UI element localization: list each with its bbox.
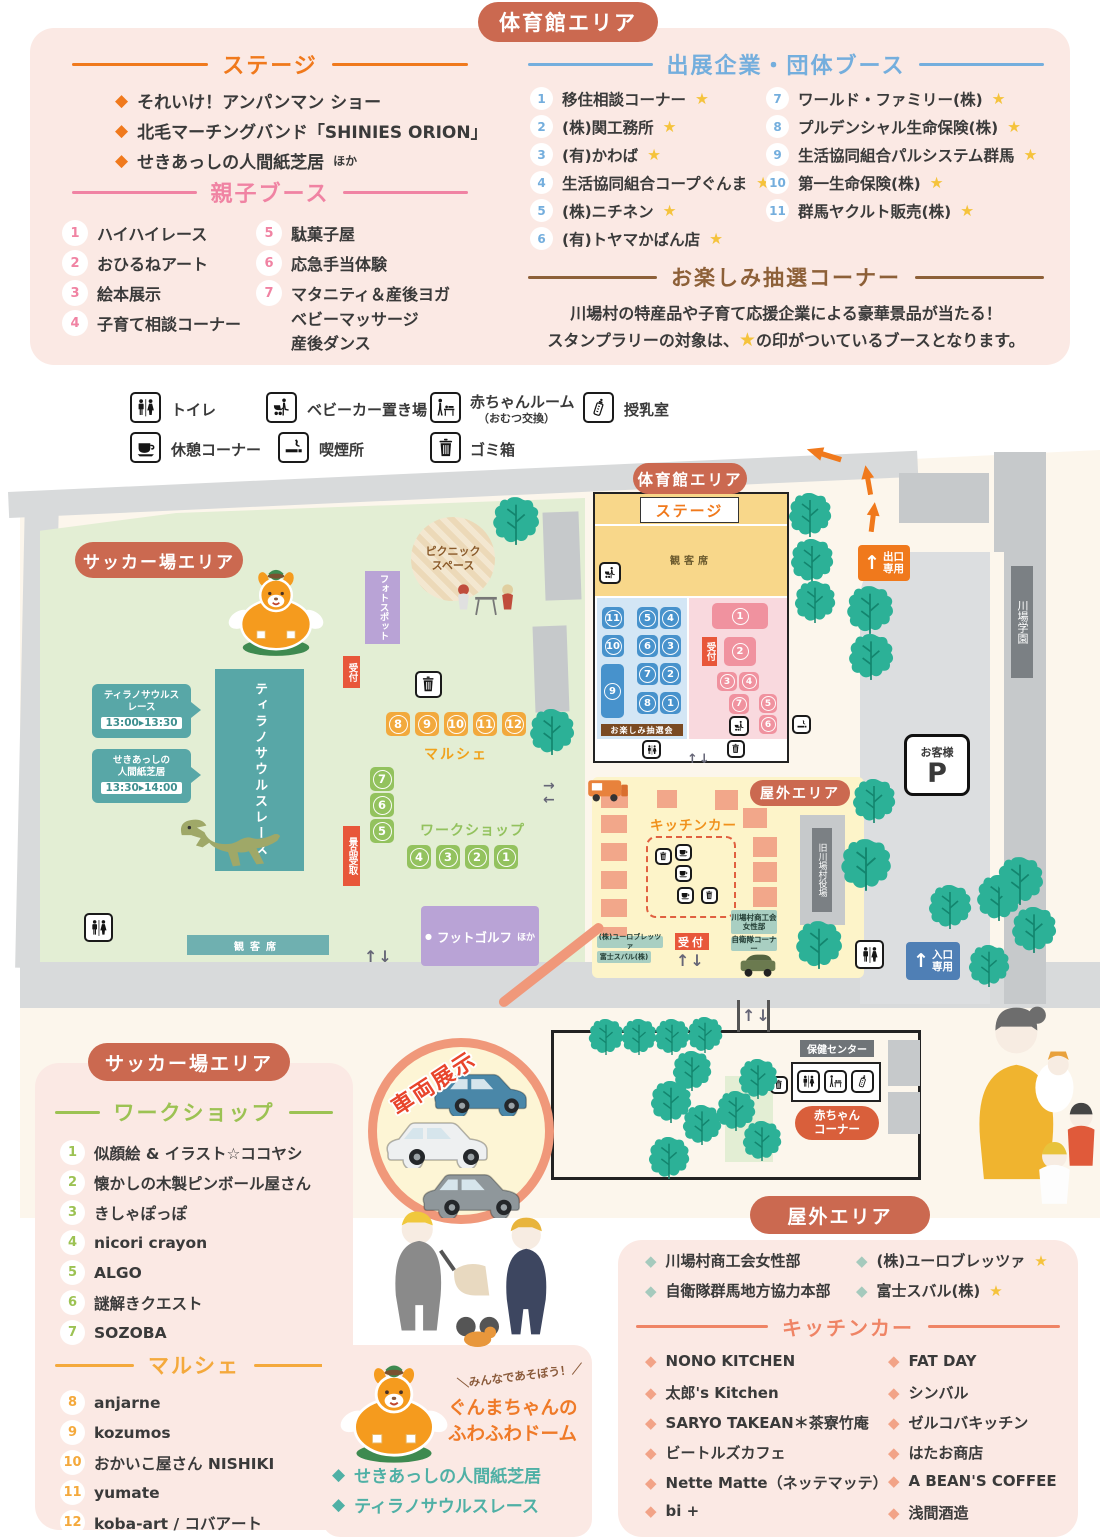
outdoor-booth-item: ◆(株)ユーロブレッツァ★ [856, 1250, 1048, 1271]
gym-area-badge-top: 体育館エリア [478, 2, 658, 42]
workshop-heading: ワークショップ [55, 1097, 333, 1127]
kitchen-car-item: ◆NONO KITCHEN [645, 1352, 795, 1370]
outdoor-booth-item: ◆自衛隊群馬地方協力本部 [645, 1280, 831, 1301]
diamond-icon: ◆ [332, 1465, 345, 1485]
kitchen-car-label: キッチンカー [650, 814, 740, 834]
kitchen-car-spot [715, 790, 738, 810]
stage-item: ◆それいけ！アンパンマン ショー [115, 88, 381, 113]
gym-booth: 7 [637, 663, 658, 685]
outdoor-booth-item: ◆川場村商工会女性部 [645, 1250, 801, 1271]
star-icon: ★ [1007, 118, 1021, 136]
parking-sign: お客様 P [904, 734, 970, 796]
kitchen-car-item: ◆FAT DAY [888, 1352, 976, 1370]
marche-booth: 9 [415, 712, 439, 736]
workshop-booth: 2 [465, 845, 489, 869]
tree-icon [790, 538, 834, 584]
exhibitor-item: 9生活協同組合パルシステム群馬★ [766, 143, 1037, 166]
marche-booth: 10 [444, 712, 468, 736]
entrance-only-sign: ↑ 入口専用 [906, 942, 960, 980]
gym-booth: 2 [660, 663, 681, 685]
diamond-icon: ◆ [888, 1384, 900, 1402]
toilet-icon [642, 740, 661, 759]
stage-item: ◆せきあっしの人間紙芝居ほか [115, 148, 357, 173]
tree-icon [687, 1016, 723, 1054]
tree-icon [968, 944, 1010, 988]
gym-booth: 1 [712, 603, 768, 629]
workshop-item: 5ALGO [60, 1260, 142, 1285]
legend-toilet-label: トイレ [171, 399, 216, 420]
gym-area-badge-map: 体育館エリア [633, 463, 747, 494]
stroller-icon [266, 392, 297, 423]
workshop-booth: 3 [436, 845, 460, 869]
diaper-change-icon [430, 392, 461, 423]
gym-booth: 9 [601, 664, 624, 718]
star-icon: ★ [1034, 1252, 1047, 1270]
exit-only-sign: ↑ 出口専用 [858, 545, 910, 581]
star-icon: ★ [992, 90, 1006, 108]
gym-seats-label: 観客席 [648, 552, 734, 567]
women-group-label: 川場村商工会女性部 [731, 910, 777, 934]
gym-booth: 4 [660, 607, 681, 629]
soccer-area-badge-map: サッカー場エリア [75, 542, 243, 578]
oyako-item: 7マタニティ＆産後ヨガ [256, 280, 450, 306]
star-icon: ★ [960, 202, 974, 220]
event-map-flyer: 体育館エリア ステージ ◆それいけ！アンパンマン ショー ◆北毛マーチングバンド… [0, 0, 1100, 1537]
tree-icon [1011, 906, 1057, 954]
kitchen-car-item: ◆太郎's Kitchen [645, 1382, 779, 1403]
exhibitor-item: 7ワールド・ファミリー(株)★ [766, 87, 1006, 110]
tree-icon [795, 920, 843, 970]
diamond-icon: ◆ [888, 1352, 900, 1370]
tree-icon [794, 580, 836, 624]
oyako-item-extra: 産後ダンス [291, 330, 371, 354]
gym-booth: 5 [637, 607, 658, 629]
diamond-icon: ◆ [888, 1472, 900, 1490]
gunma-dome-illustration [333, 1356, 455, 1468]
callout-pointer [191, 767, 201, 783]
oyako-item: 6応急手当体験 [256, 250, 387, 276]
tree-icon [788, 492, 832, 538]
arrows-up-down: ↑↓ [676, 951, 704, 970]
oyako-heading: 親子ブース [72, 176, 468, 208]
tree-icon [529, 708, 575, 756]
lottery-text-line2: スタンプラリーの対象は、★の印がついているブースとなります。 [528, 327, 1044, 351]
star-icon: ★ [709, 230, 723, 248]
stage-item: ◆北毛マーチングバンド「SHINIES ORION」 [115, 118, 488, 143]
toilet-icon [855, 940, 884, 969]
diamond-icon: ◆ [888, 1444, 900, 1462]
gunma-event-item: ◆ティラノサウルスレース [332, 1492, 539, 1517]
kitchen-car-spot [753, 862, 777, 882]
lottery-text-line1: 川場村の特産品や子育て応援企業による豪華景品が当たる！ [528, 300, 1044, 324]
marche-item: 11yumate [60, 1480, 160, 1505]
trash-icon [655, 848, 672, 865]
path-line [737, 1000, 740, 1032]
diamond-icon: ◆ [645, 1444, 657, 1462]
diamond-icon: ◆ [856, 1282, 868, 1300]
lottery-heading: お楽しみ抽選コーナー [528, 262, 1044, 292]
gym-booth: 6 [637, 635, 658, 657]
gym-reception-label: 受付 [702, 637, 717, 666]
star-icon: ★ [663, 202, 677, 220]
gym-booth: 6 [759, 715, 777, 734]
gym-lottery-bar: お楽しみ抽選会 [601, 724, 683, 736]
diamond-icon: ◆ [645, 1282, 657, 1300]
tree-icon [621, 1018, 657, 1056]
tree-icon [996, 856, 1044, 906]
bottle-icon [851, 1070, 874, 1093]
outdoor-booth-item: ◆富士スバル(株)★ [856, 1280, 1003, 1301]
star-icon: ★ [1024, 146, 1038, 164]
legend-baby-room-label: 赤ちゃんルーム [470, 391, 575, 412]
stroller-icon [729, 716, 749, 736]
kitchen-car-spot [601, 871, 627, 889]
legend-nursing-label: 授乳室 [624, 399, 669, 420]
kitchen-car-spot [753, 887, 777, 907]
kitchen-car-spot [601, 899, 627, 917]
cup-icon [675, 865, 692, 882]
building [888, 1092, 920, 1134]
gunma-event-item: ◆せきあっしの人間紙芝居 [332, 1462, 541, 1487]
workshop-booth: 4 [407, 845, 431, 869]
kitchen-car-spot [657, 790, 677, 808]
workshop-item: 7SOZOBA [60, 1320, 167, 1345]
diamond-icon: ◆ [645, 1384, 657, 1402]
marche-booth: 11 [473, 712, 497, 736]
kitchen-car-item: ◆SARYO TAKEAN＊茶寮竹庵 [645, 1412, 869, 1433]
diamond-icon: ◆ [888, 1504, 900, 1522]
gym-booth: 4 [739, 672, 759, 691]
kitchen-car-item: ◆ゼルコバキッチン [888, 1412, 1028, 1433]
gym-booth: 7 [729, 694, 749, 714]
kitchen-car-item: ◆はたお商店 [888, 1442, 983, 1463]
star-icon: ★ [647, 146, 661, 164]
trash-icon [727, 740, 745, 758]
lottery-title: お楽しみ抽選コーナー [657, 262, 915, 292]
trex-race-callout: ティラノサウルス レース 13:00▸13:30 [92, 684, 191, 738]
legend-baby-room-sub: （おむつ交換） [478, 410, 555, 426]
health-center-sign: 保健センター [800, 1040, 874, 1057]
kitchen-car-spot [743, 808, 767, 828]
jsdf-vehicle [737, 952, 779, 978]
exhibitor-title: 出展企業・団体ブース [653, 48, 920, 80]
cup-icon [675, 844, 692, 861]
stage-heading: ステージ [72, 48, 468, 80]
exhibitor-item: 6(有)トヤマかばん店★ [530, 227, 723, 250]
trash-icon [430, 432, 461, 463]
workshop-map-label: ワークショップ [420, 820, 525, 840]
workshop-item: 4nicori crayon [60, 1230, 207, 1255]
diamond-icon: ◆ [115, 121, 128, 141]
exhibitor-item: 11群馬ヤクルト販売(株)★ [766, 199, 974, 222]
kitchen-car-item: ◆A BEAN'S COFFEE [888, 1472, 1057, 1490]
kamishibai-callout: せきあっしの 人間紙芝居 13:30▸14:00 [92, 749, 191, 803]
exhibit-car-white [382, 1116, 502, 1168]
workshop-item: 2懐かしの木製ピンボール屋さん [60, 1170, 311, 1195]
kitchen-car-item: ◆浅間酒造 [888, 1502, 969, 1523]
marche-item: 9kozumos [60, 1420, 171, 1445]
marche-item: 12koba-art / コバアート [60, 1510, 262, 1535]
diamond-icon: ◆ [645, 1252, 657, 1270]
exhibitor-item: 2(株)関工務所★ [530, 115, 677, 138]
star-icon: ★ [739, 329, 756, 351]
building [899, 473, 989, 523]
tree-icon [840, 838, 892, 892]
kitchen-car-heading: キッチンカー [636, 1312, 1060, 1341]
exhibitor-item: 10第一生命保険(株)★ [766, 171, 944, 194]
marche-item: 8anjarne [60, 1390, 160, 1415]
workshop-item: 3きしゃぽっぽ [60, 1200, 187, 1225]
prize-pickup-label: 景品受取 [343, 826, 360, 886]
diamond-icon: ◆ [115, 151, 128, 171]
soccer-seats-bar: 観客席 [187, 935, 329, 955]
oyako-item: 1ハイハイレース [62, 220, 207, 246]
gym-booth: 5 [759, 694, 777, 713]
old-village-office-sign: 旧川場村役場 [812, 828, 832, 912]
outdoor-area-badge-map: 屋外エリア [750, 780, 850, 806]
gunma-dome-map [222, 562, 330, 660]
trex-illustration [178, 810, 282, 882]
marche-heading: マルシェ [55, 1350, 333, 1380]
gym-booth: 8 [637, 692, 658, 714]
tree-icon [742, 1120, 782, 1162]
cup-icon [677, 887, 694, 904]
kitchen-car-item: ◆シンバル [888, 1382, 969, 1403]
trash-icon [415, 671, 442, 698]
star-icon: ★ [989, 1282, 1002, 1300]
kitchen-car-spot [601, 843, 627, 861]
diamond-icon: ◆ [115, 91, 128, 111]
soccer-area-badge-panel: サッカー場エリア [88, 1043, 290, 1081]
diamond-icon: ◆ [645, 1414, 657, 1432]
diamond-icon: ◆ [856, 1252, 868, 1270]
diamond-icon: ◆ [332, 1495, 345, 1515]
tree-icon [848, 633, 894, 681]
outdoor-reception-label: 受付 [675, 933, 709, 950]
soccer-reception-label: 受付 [343, 656, 360, 688]
kitchen-car-item: ◆Nette Matte（ネッテマッテ） [645, 1472, 888, 1493]
exhibitor-item: 4生活協同組合コープぐんま★ [530, 171, 770, 194]
legend-smoking-label: 喫煙所 [319, 439, 364, 460]
building [542, 511, 581, 600]
legend-rest-label: 休憩コーナー [171, 439, 261, 460]
exhibitor-heading: 出展企業・団体ブース [528, 48, 1044, 80]
tree-icon [852, 778, 896, 824]
tree-icon [648, 1136, 690, 1180]
euro-label: (株)ユーロブレッツァ [597, 936, 663, 948]
toilet-icon [130, 392, 161, 423]
tree-icon [588, 1018, 624, 1056]
workshop-item: 6謎解きクエスト [60, 1290, 203, 1315]
trash-icon [701, 887, 718, 904]
arrows-left-right: →← [543, 779, 555, 807]
diamond-icon: ◆ [645, 1474, 657, 1492]
oyako-item: 4子育て相談コーナー [62, 310, 241, 336]
exhibitor-item: 1移住相談コーナー★ [530, 87, 709, 110]
workshop-booth: 1 [494, 845, 518, 869]
marche-booth: 12 [502, 712, 526, 736]
workshop-item: 1似顔絵 & イラスト☆ココヤシ [60, 1140, 302, 1165]
legend-stroller-label: ベビーカー置き場 [307, 399, 427, 420]
stroller-family-illustration [360, 1202, 566, 1348]
cup-icon [130, 432, 161, 463]
star-icon: ★ [663, 118, 677, 136]
building [888, 1040, 920, 1086]
building [533, 625, 570, 712]
diaper-change-icon [824, 1070, 847, 1093]
baby-corner-badge: 赤ちゃんコーナー [795, 1106, 879, 1140]
smoking-icon [792, 715, 811, 734]
tree-icon [846, 585, 894, 635]
toilet-icon [797, 1070, 820, 1093]
arrows-up-down: ↑↓ [364, 947, 392, 966]
kitchen-car-spot [753, 837, 777, 857]
oyako-title: 親子ブース [197, 176, 344, 208]
smoking-icon [278, 432, 309, 463]
legend-trash-label: ゴミ箱 [470, 439, 515, 460]
footgolf-zone: ●フットゴルフほか [421, 906, 539, 966]
star-icon: ★ [695, 90, 709, 108]
picnic-people [450, 580, 522, 622]
marche-item: 10おかいこ屋さん NISHIKI [60, 1450, 274, 1475]
photo-spot-label: フォトスポット [365, 571, 400, 644]
oyako-item-extra: ベビーマッサージ [291, 306, 419, 330]
oyako-item: 3絵本展示 [62, 280, 161, 306]
gym-stage-box: ステージ [640, 497, 739, 523]
marche-map-label: マルシェ [424, 744, 488, 764]
gunma-dome-name: ぐんまちゃんのふわふわドーム [448, 1396, 598, 1448]
gym-booth: 3 [717, 672, 737, 691]
food-truck [586, 774, 630, 804]
gym-booth: 11 [602, 607, 624, 629]
star-icon: ★ [930, 174, 944, 192]
kitchen-car-item: ◆ビートルズカフェ [645, 1442, 786, 1463]
family-illustration [942, 995, 1100, 1207]
kitchen-car-item: ◆bi + [645, 1502, 699, 1520]
arrows-up-down: ↑↓ [687, 752, 710, 767]
tree-icon [492, 496, 540, 546]
exhibitor-item: 5(株)ニチネン★ [530, 199, 677, 222]
workshop-booth: 5 [370, 819, 394, 843]
outdoor-area-badge-panel: 屋外エリア [750, 1196, 930, 1234]
toilet-icon [84, 913, 113, 942]
gym-booth: 2 [724, 637, 756, 666]
workshop-booth: 6 [370, 793, 394, 817]
stroller-icon [599, 562, 621, 584]
callout-pointer [191, 702, 201, 718]
gym-booth: 3 [660, 635, 681, 657]
diamond-icon: ◆ [645, 1502, 657, 1520]
building [994, 452, 1046, 552]
arrows-up-down: ↑↓ [742, 1006, 770, 1025]
oyako-item: 2おひるねアート [62, 250, 208, 276]
exhibitor-item: 3(有)かわば★ [530, 143, 661, 166]
exhibitor-item: 8プルデンシャル生命保険(株)★ [766, 115, 1021, 138]
kitchen-car-spot [601, 815, 627, 833]
marche-booth: 8 [386, 712, 410, 736]
diamond-icon: ◆ [888, 1414, 900, 1432]
bottle-icon [583, 392, 614, 423]
workshop-booth: 7 [370, 767, 394, 791]
gym-booth: 10 [602, 635, 624, 657]
jsdf-corner-label: 自衛隊コーナー [731, 937, 777, 951]
gym-booth: 1 [660, 692, 681, 714]
school-sign: 川場学園 [1011, 566, 1033, 678]
stage-title: ステージ [208, 48, 332, 80]
subaru-label: 富士スバル(株) [597, 951, 651, 963]
tree-icon [928, 884, 972, 930]
diamond-icon: ◆ [645, 1352, 657, 1370]
oyako-item: 5駄菓子屋 [256, 220, 355, 246]
